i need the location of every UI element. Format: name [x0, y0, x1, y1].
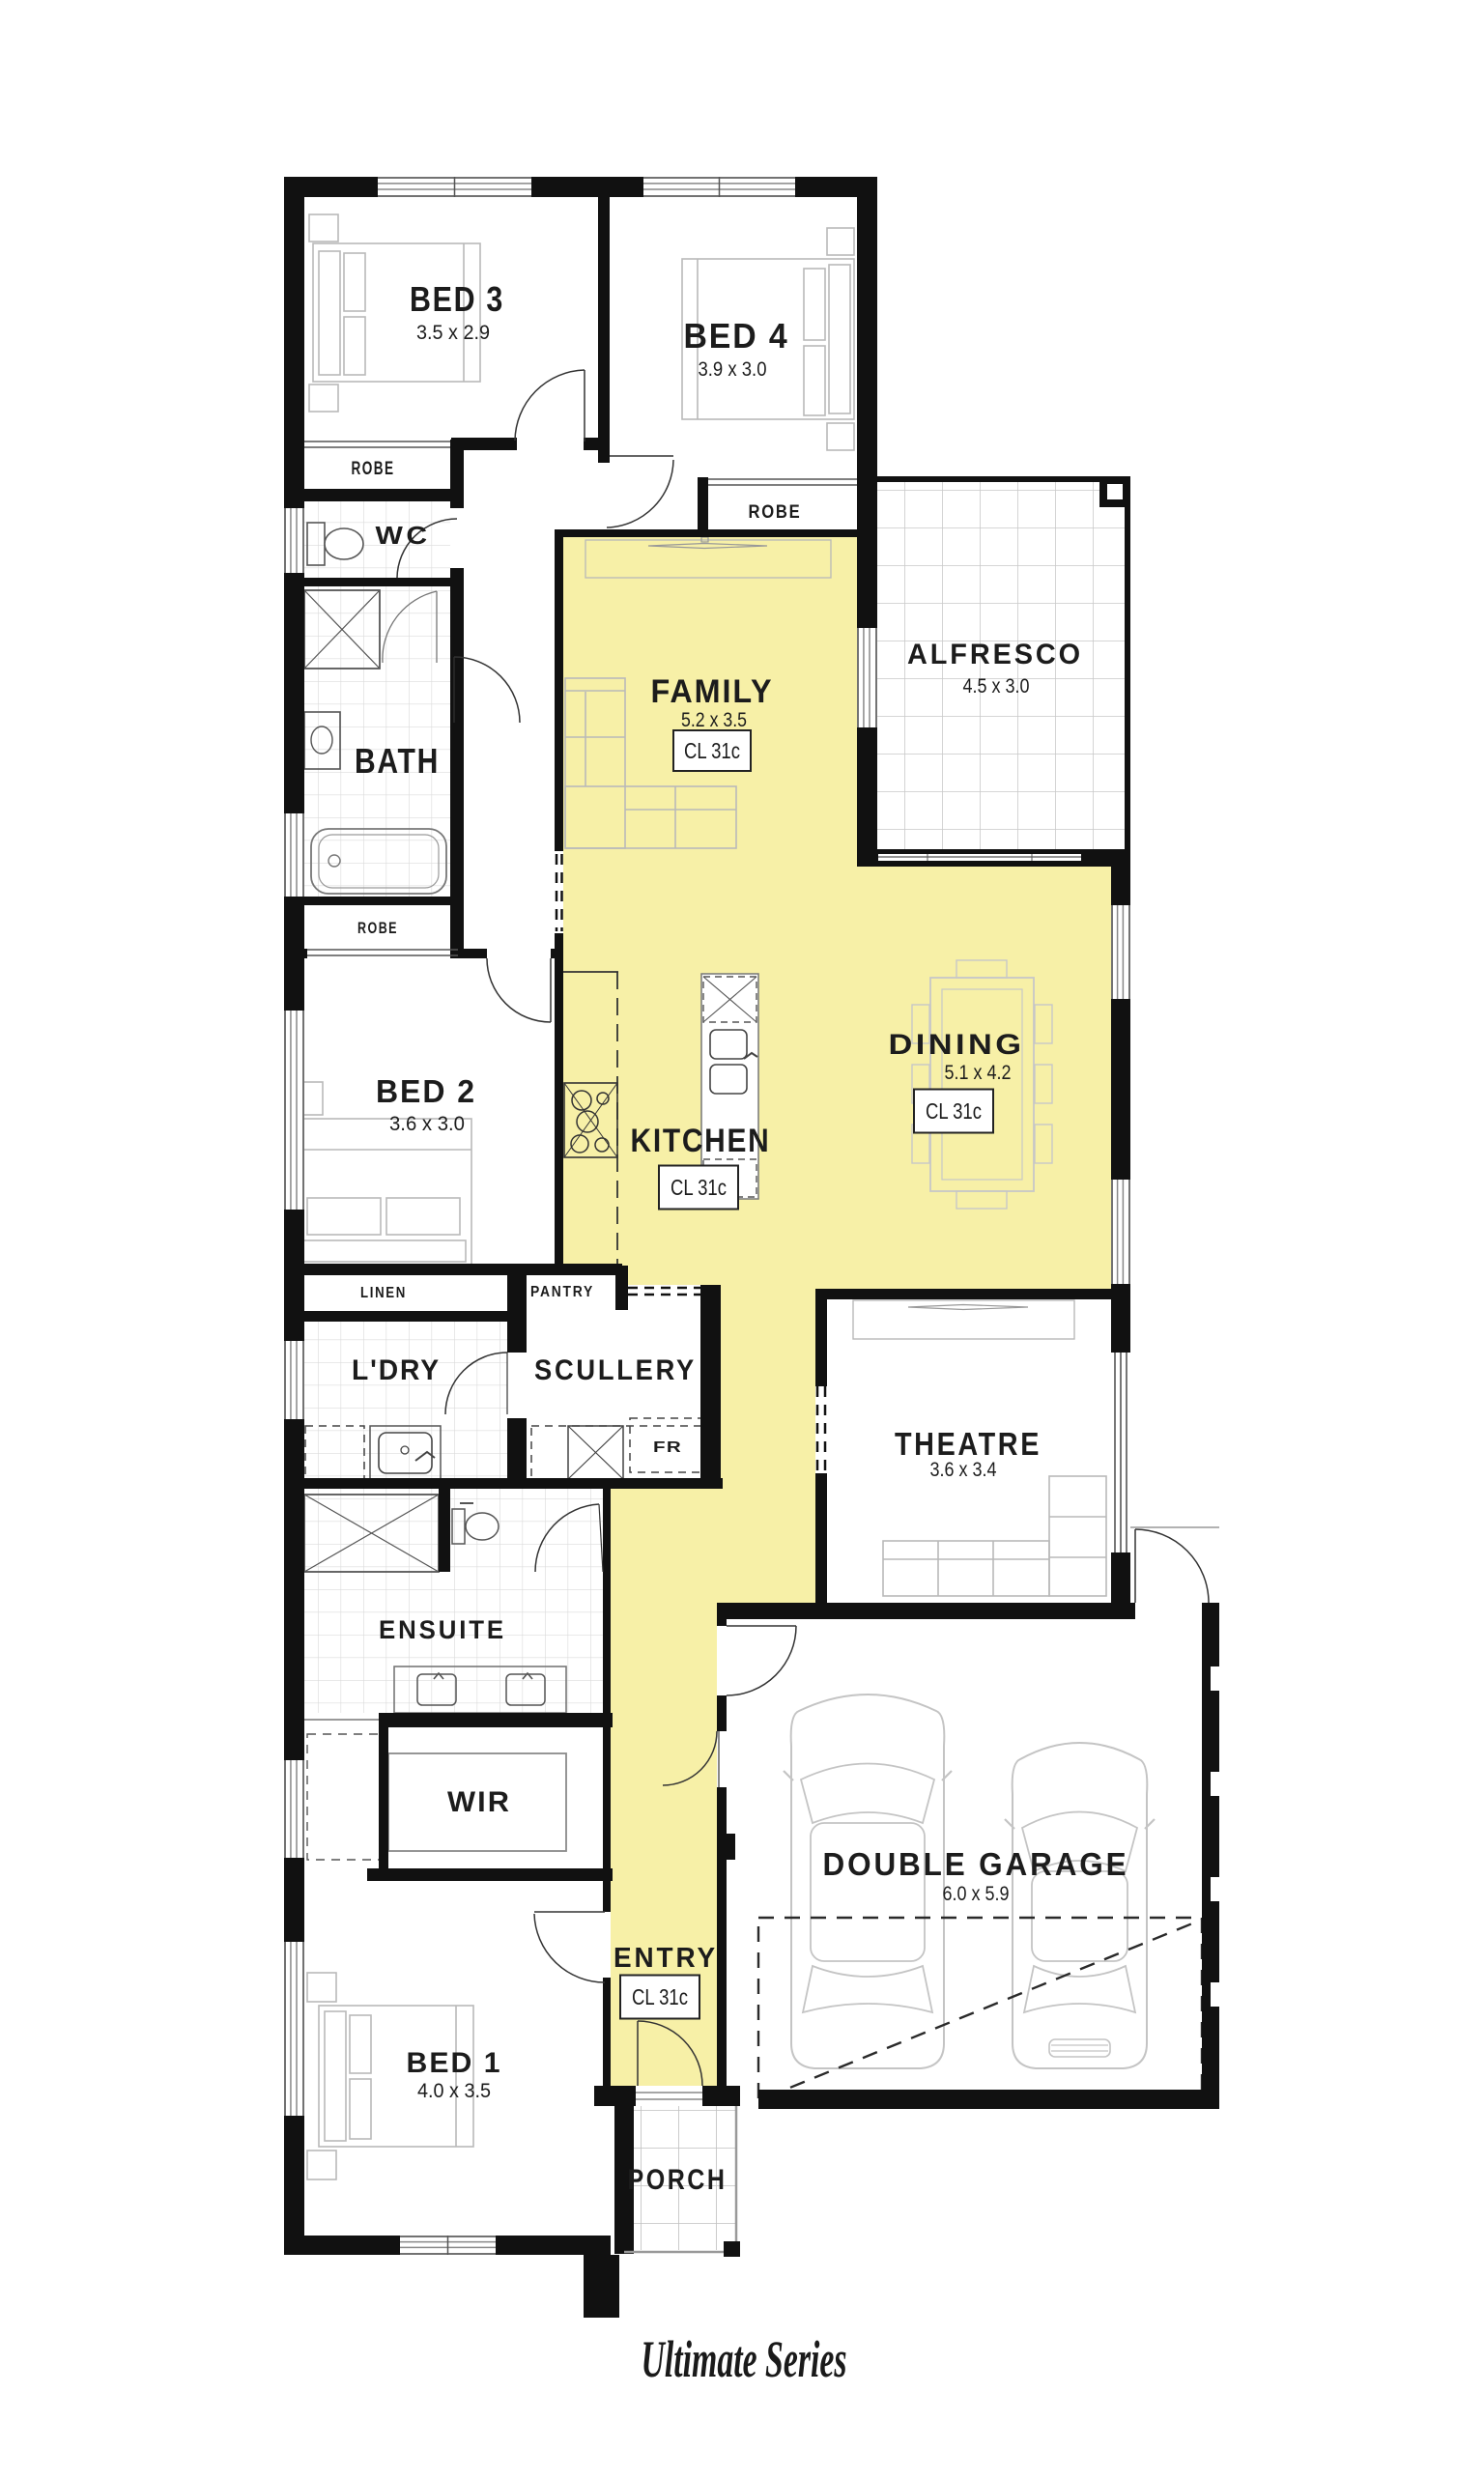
svg-text:LINEN: LINEN [360, 1285, 407, 1301]
svg-text:FR: FR [653, 1439, 682, 1456]
svg-text:WC: WC [376, 521, 431, 550]
svg-text:FAMILY: FAMILY [651, 673, 774, 710]
svg-text:4.0 x 3.5: 4.0 x 3.5 [417, 2080, 491, 2102]
svg-text:3.6 x 3.4: 3.6 x 3.4 [930, 1459, 997, 1481]
svg-text:SCULLERY: SCULLERY [534, 1354, 697, 1386]
svg-text:L'DRY: L'DRY [352, 1354, 441, 1386]
svg-text:BED 3: BED 3 [410, 279, 504, 319]
svg-text:BED 2: BED 2 [376, 1073, 476, 1109]
svg-text:CL 31c: CL 31c [926, 1098, 982, 1124]
svg-text:ROBE: ROBE [357, 919, 398, 937]
svg-text:3.9 x 3.0: 3.9 x 3.0 [699, 358, 767, 381]
svg-text:CL 31c: CL 31c [684, 738, 740, 763]
svg-text:ROBE: ROBE [749, 502, 802, 523]
svg-text:4.5 x 3.0: 4.5 x 3.0 [963, 675, 1030, 698]
svg-text:DOUBLE GARAGE: DOUBLE GARAGE [823, 1846, 1129, 1882]
svg-text:PANTRY: PANTRY [530, 1284, 594, 1300]
svg-text:KITCHEN: KITCHEN [631, 1123, 771, 1159]
svg-text:5.1 x 4.2: 5.1 x 4.2 [945, 1062, 1012, 1084]
svg-text:CL 31c: CL 31c [632, 1984, 688, 2009]
svg-text:Ultimate Series: Ultimate Series [642, 2330, 847, 2388]
svg-text:BATH: BATH [355, 741, 440, 781]
svg-text:DINING: DINING [889, 1029, 1025, 1061]
svg-text:ENSUITE: ENSUITE [379, 1615, 506, 1644]
svg-text:CL 31c: CL 31c [671, 1175, 727, 1200]
svg-text:ENTRY: ENTRY [614, 1943, 718, 1974]
svg-text:ROBE: ROBE [352, 459, 395, 479]
svg-text:3.6 x 3.0: 3.6 x 3.0 [389, 1113, 465, 1135]
svg-text:PORCH: PORCH [628, 2164, 728, 2196]
svg-text:ALFRESCO: ALFRESCO [907, 639, 1083, 670]
svg-text:BED 4: BED 4 [684, 316, 789, 356]
svg-text:WIR: WIR [447, 1786, 511, 1818]
svg-text:6.0 x 5.9: 6.0 x 5.9 [943, 1883, 1010, 1905]
svg-text:3.5 x 2.9: 3.5 x 2.9 [416, 322, 490, 344]
svg-text:BED 1: BED 1 [407, 2047, 502, 2079]
svg-text:THEATRE: THEATRE [895, 1426, 1042, 1462]
svg-text:5.2 x 3.5: 5.2 x 3.5 [681, 709, 747, 731]
